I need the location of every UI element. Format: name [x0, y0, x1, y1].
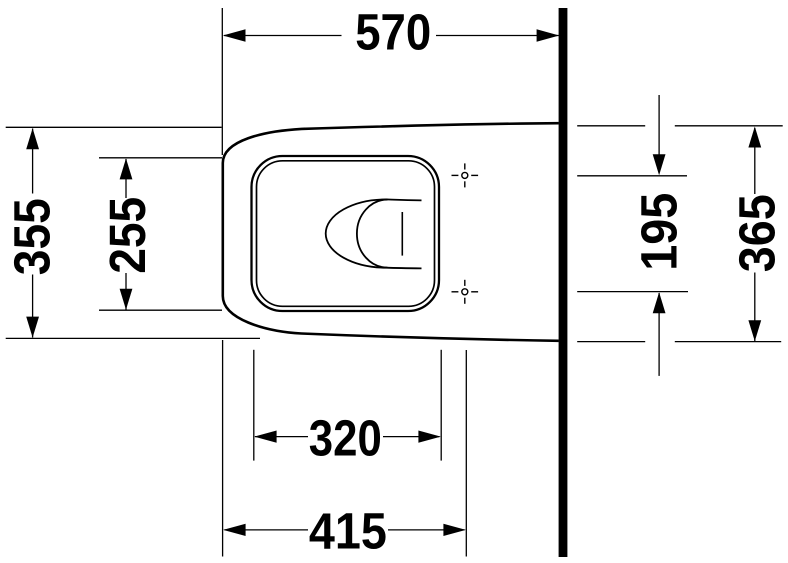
svg-text:570: 570 [355, 4, 431, 61]
svg-text:415: 415 [309, 503, 387, 560]
svg-text:355: 355 [4, 198, 61, 275]
svg-text:195: 195 [631, 193, 688, 271]
svg-text:365: 365 [729, 194, 786, 272]
svg-text:320: 320 [309, 409, 382, 466]
svg-text:255: 255 [99, 197, 156, 274]
